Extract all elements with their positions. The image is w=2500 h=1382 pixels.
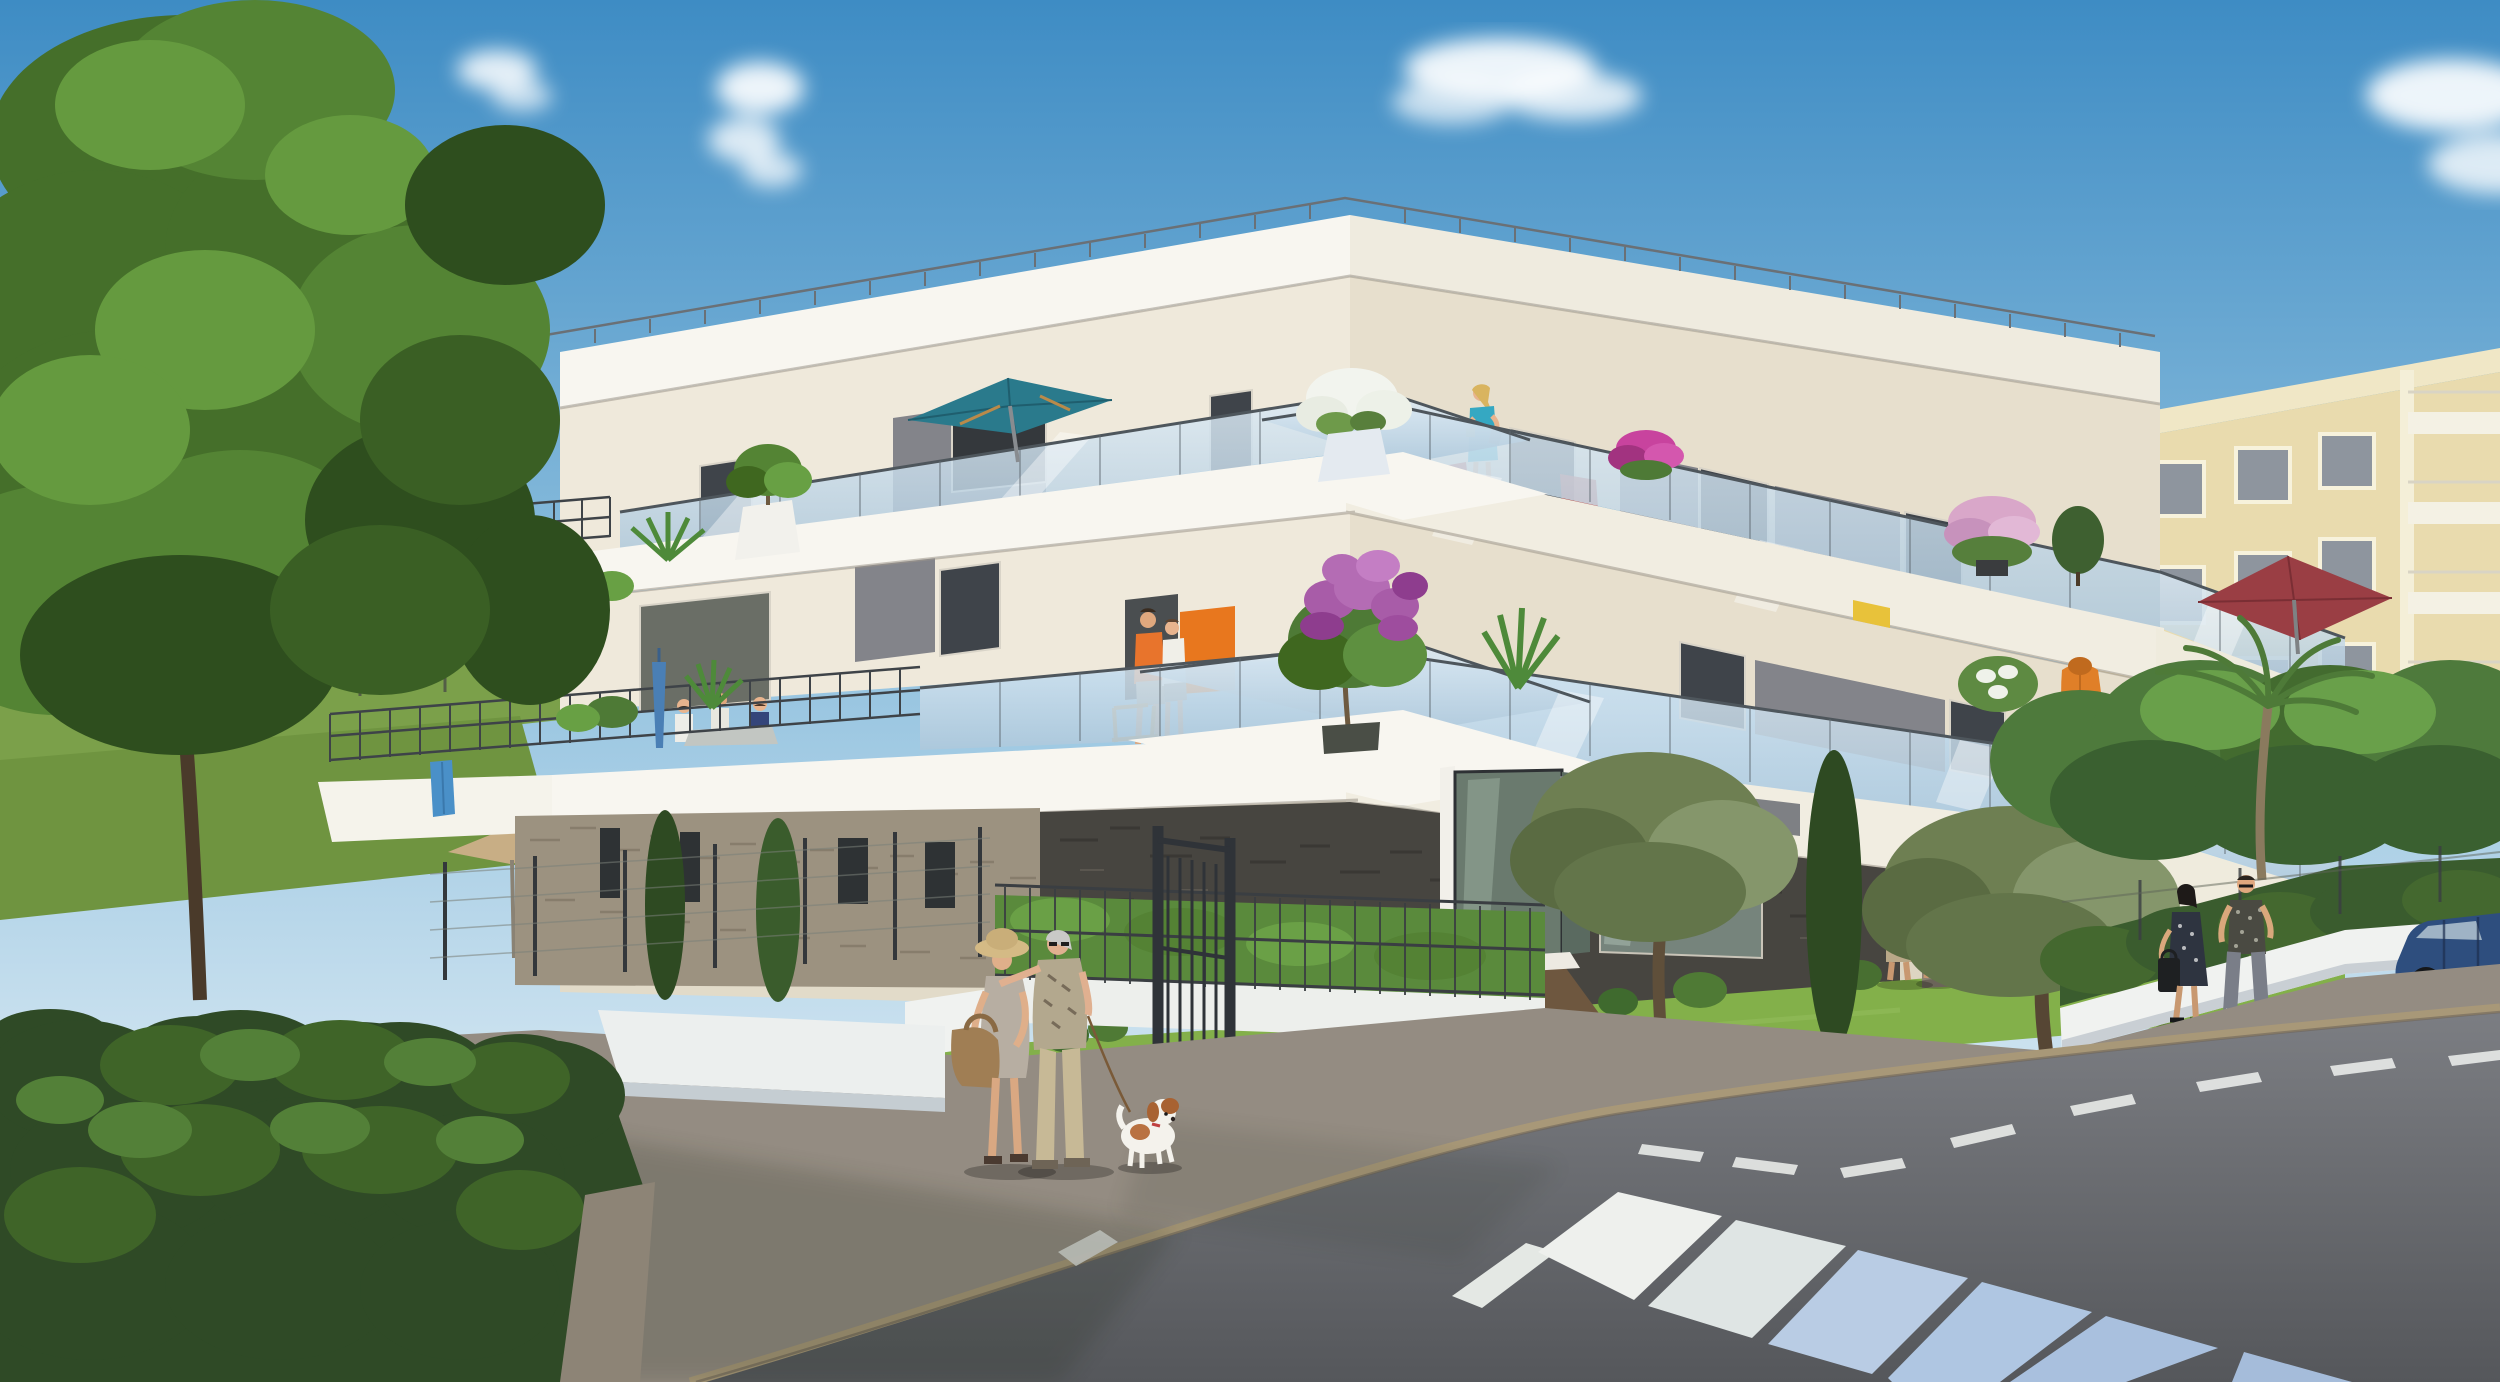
foreground-hedge [0, 1009, 648, 1382]
white-flower-bush [1958, 656, 2038, 712]
cypress-right [1806, 750, 1862, 1050]
hedge-white-wall [598, 1010, 945, 1112]
scene-canvas [0, 0, 2500, 1382]
blue-towel [430, 760, 455, 817]
cypress-left-b [756, 818, 800, 1002]
architectural-rendering [0, 0, 2500, 1382]
cypress-left-a [645, 810, 685, 1000]
